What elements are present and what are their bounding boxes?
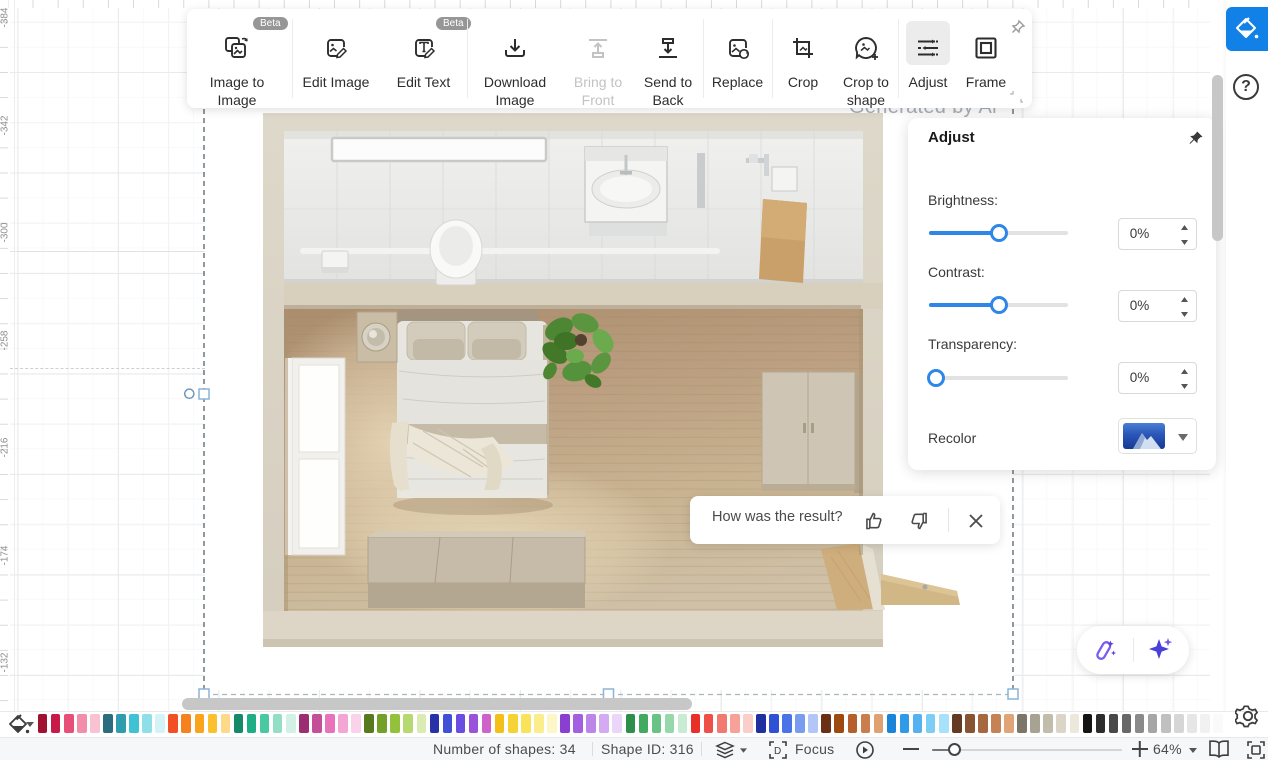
svg-text:D: D [774,746,781,757]
